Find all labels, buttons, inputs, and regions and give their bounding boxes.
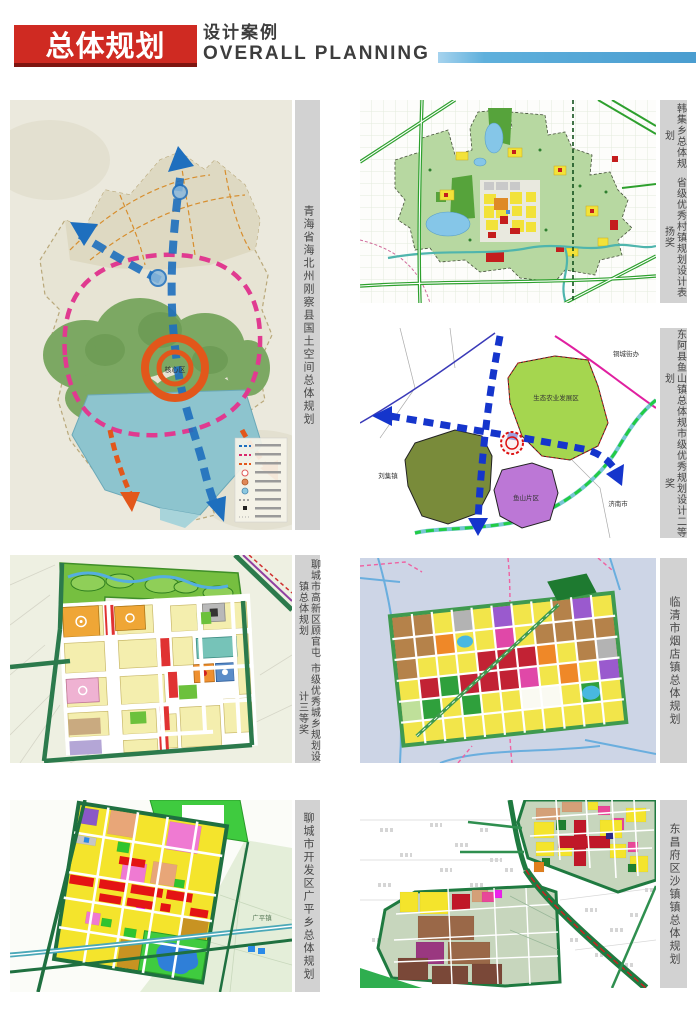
section-subtitle: 设计案例 OVERALL PLANNING	[203, 24, 430, 63]
panel-yushan: 生态农业发展区 鱼山片区 刘集镇 济南市 铜城街办 东阿县鱼山镇总体规划 市级优…	[360, 328, 687, 538]
town-core-ring	[501, 432, 523, 454]
svg-text:生态农业发展区: 生态农业发展区	[533, 393, 579, 402]
panel-shazhen: 东昌府区沙镇镇总体规划	[360, 800, 687, 988]
section-title-badge: 总体规划	[14, 25, 197, 67]
shazhen-master-plan-map	[360, 800, 656, 988]
section-subtitle-en: OVERALL PLANNING	[203, 44, 430, 63]
header-accent-bar	[438, 52, 696, 63]
hanji-master-plan-map	[360, 100, 656, 303]
caption-yandian: 临清市烟店镇总体规划	[660, 558, 687, 763]
caption-title: 聊城市开发区广平乡总体规划	[301, 812, 314, 981]
map-legend	[235, 438, 287, 522]
caption-title: 东阿县鱼山镇总体规划	[662, 328, 686, 428]
south-planned-area	[378, 886, 560, 986]
svg-text:鱼山片区: 鱼山片区	[513, 493, 540, 502]
caption-gangcha: 青海省海北州刚察县国土空间总体规划	[295, 100, 320, 530]
caption-title: 临清市烟店镇总体规划	[667, 596, 680, 726]
town-center-blocks	[480, 180, 540, 242]
svg-text:铜城街办: 铜城街办	[613, 349, 640, 358]
caption-award: 市级优秀城乡规划设计三等奖	[296, 663, 320, 763]
panel-guguantun: 聊城市高新区顾官屯镇总体规划 市级优秀城乡规划设计三等奖	[10, 555, 320, 763]
yandian-master-plan-map	[360, 558, 656, 763]
gangcha-master-plan-map: 核心区	[10, 100, 292, 530]
panel-yandian: 临清市烟店镇总体规划	[360, 558, 687, 763]
caption-title: 东昌府区沙镇镇总体规划	[667, 823, 680, 966]
svg-text:济南市: 济南市	[608, 499, 628, 508]
caption-award: 市级优秀规划设计二等奖	[662, 428, 686, 538]
yushan-master-plan-map: 生态农业发展区 鱼山片区 刘集镇 济南市 铜城街办	[360, 328, 656, 538]
caption-shazhen: 东昌府区沙镇镇总体规划	[660, 800, 687, 988]
guguantun-master-plan-map	[10, 555, 292, 763]
caption-yushan: 东阿县鱼山镇总体规划 市级优秀规划设计二等奖	[660, 328, 687, 538]
caption-guguantun: 聊城市高新区顾官屯镇总体规划 市级优秀城乡规划设计三等奖	[295, 555, 320, 763]
town-grid	[54, 803, 227, 983]
panel-hanji: 韩集乡总体规划 省级优秀村镇规划设计表扬奖	[360, 100, 687, 303]
svg-text:刘集镇: 刘集镇	[378, 471, 398, 480]
caption-title: 聊城市高新区顾官屯镇总体规划	[296, 555, 320, 663]
caption-title: 青海省海北州刚察县国土空间总体规划	[301, 205, 314, 426]
caption-title: 韩集乡总体规划	[662, 100, 686, 171]
guangping-master-plan-map: 广平镇	[10, 800, 292, 992]
panel-gangcha: 核心区	[10, 100, 320, 530]
section-subtitle-cn: 设计案例	[203, 24, 430, 41]
caption-award: 省级优秀村镇规划设计表扬奖	[662, 171, 686, 303]
town-blocks	[58, 594, 258, 756]
panel-guangping: 广平镇 聊城市开发区广平乡总体规划	[10, 800, 320, 992]
svg-text:广平镇: 广平镇	[252, 913, 272, 922]
core-area-label: 核心区	[165, 365, 186, 374]
caption-guangping: 聊城市开发区广平乡总体规划	[295, 800, 320, 992]
section-title-text: 总体规划	[45, 23, 165, 65]
caption-hanji: 韩集乡总体规划 省级优秀村镇规划设计表扬奖	[660, 100, 687, 303]
